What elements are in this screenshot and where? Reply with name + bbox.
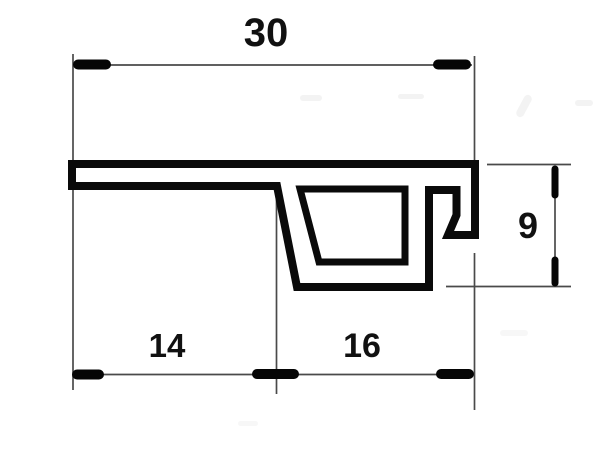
drawing-canvas: 30 14 16 9 [0, 0, 600, 450]
scan-artifact [300, 95, 322, 101]
dimension-label-16: 16 [343, 327, 381, 365]
scan-artifact [515, 94, 533, 119]
scan-artifact [238, 421, 258, 426]
profile-cavity [300, 189, 405, 262]
technical-drawing: 30 14 16 9 [0, 0, 600, 450]
profile-outline [72, 164, 475, 287]
scan-artifact [398, 94, 424, 99]
dimension-label-30: 30 [244, 11, 289, 55]
dimension-label-14: 14 [149, 327, 186, 364]
scan-artifact [500, 330, 528, 336]
profile-group [72, 164, 475, 287]
scan-artifact [575, 100, 593, 106]
dimension-label-9: 9 [518, 205, 538, 246]
